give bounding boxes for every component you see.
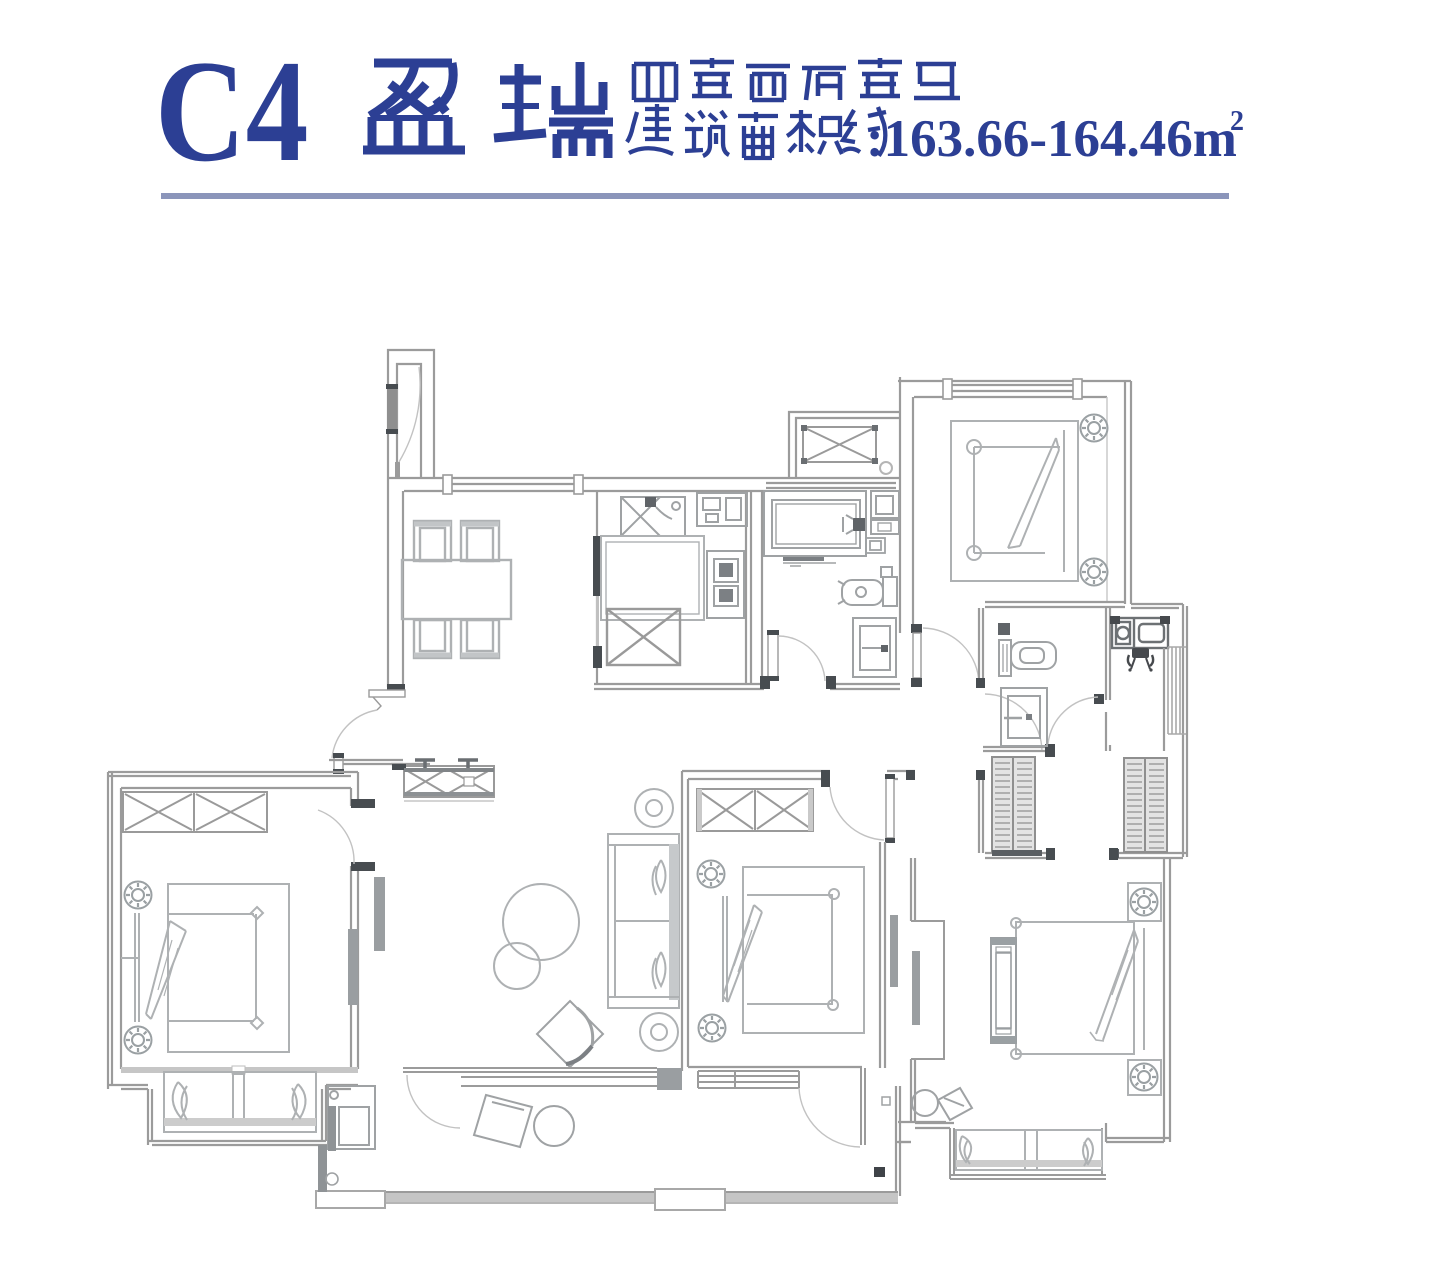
svg-text::163.66-164.46m: :163.66-164.46m <box>866 110 1237 168</box>
svg-text:2: 2 <box>1230 106 1244 137</box>
svg-text:C4: C4 <box>155 31 308 192</box>
